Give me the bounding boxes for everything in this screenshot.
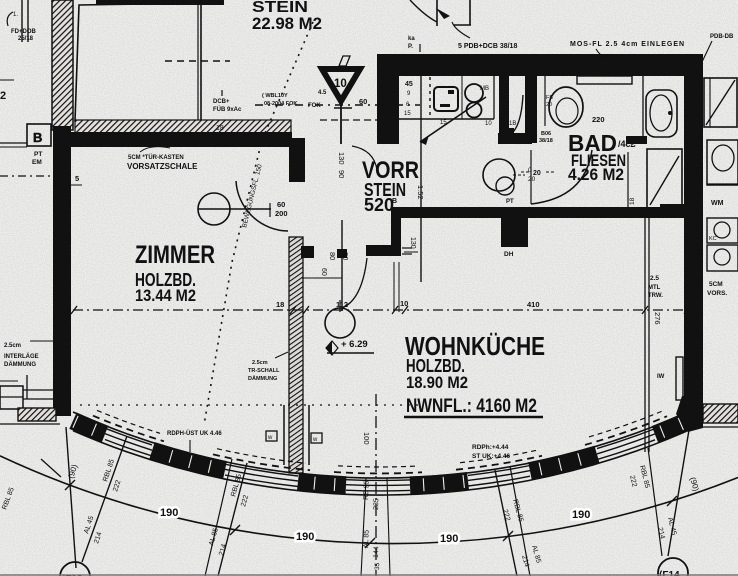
svg-text:10: 10 <box>334 78 347 90</box>
svg-text:190: 190 <box>440 533 458 545</box>
svg-text:ka: ka <box>408 36 415 42</box>
svg-text:60: 60 <box>320 268 327 276</box>
svg-text:RDPH-ÜST UK 4.46: RDPH-ÜST UK 4.46 <box>167 430 222 437</box>
svg-text:276: 276 <box>653 312 662 325</box>
svg-text:FOK: FOK <box>308 103 321 109</box>
svg-text:/4c£: /4c£ <box>618 139 636 149</box>
svg-text:112: 112 <box>336 300 348 309</box>
svg-text:w: w <box>267 435 273 441</box>
svg-text:IW: IW <box>657 374 665 380</box>
svg-text:4.26 M2: 4.26 M2 <box>568 165 624 184</box>
svg-text:INTERLÄGE: INTERLÄGE <box>4 353 39 360</box>
svg-text:MOS-FL 2.5 4cm EINLEGEN: MOS-FL 2.5 4cm EINLEGEN <box>570 41 685 48</box>
svg-text:1.: 1. <box>13 12 18 18</box>
svg-text:P.: P. <box>408 44 413 50</box>
svg-text:FD+DOB: FD+DOB <box>11 29 37 35</box>
svg-text:RDPh:+4.44: RDPh:+4.44 <box>472 444 509 451</box>
svg-text:VORSATZSCHALE: VORSATZSCHALE <box>127 162 198 171</box>
svg-text:18: 18 <box>276 300 284 309</box>
svg-text:15: 15 <box>440 120 447 126</box>
svg-text:DÄMMUNG: DÄMMUNG <box>4 361 36 368</box>
svg-text:5CM: 5CM <box>709 281 723 288</box>
svg-text:410: 410 <box>527 300 540 309</box>
svg-text:130: 130 <box>409 237 416 249</box>
svg-text:10: 10 <box>485 121 492 127</box>
svg-text:20: 20 <box>528 176 536 183</box>
svg-text:520: 520 <box>364 195 394 215</box>
svg-text:2.5: 2.5 <box>650 275 659 282</box>
svg-text:190: 190 <box>296 531 314 543</box>
svg-text:18: 18 <box>216 125 224 132</box>
svg-text:PT: PT <box>506 199 514 205</box>
svg-text:35: 35 <box>374 562 381 570</box>
svg-text:MB: MB <box>480 86 489 92</box>
svg-text:200: 200 <box>275 209 288 218</box>
svg-text:KC: KC <box>709 236 717 242</box>
svg-text:100: 100 <box>362 432 371 445</box>
svg-text:2: 2 <box>0 90 6 102</box>
svg-text:B: B <box>33 130 42 145</box>
svg-text:235: 235 <box>373 498 380 510</box>
svg-text:ZIMMER: ZIMMER <box>135 241 215 269</box>
svg-text:B06: B06 <box>541 131 551 137</box>
svg-text:DÄMMUNG: DÄMMUNG <box>248 375 277 382</box>
svg-text:PDB-DB: PDB-DB <box>710 34 734 40</box>
svg-text:5: 5 <box>75 174 79 183</box>
svg-text:18: 18 <box>629 197 636 205</box>
svg-text:2.5cm: 2.5cm <box>252 360 268 366</box>
svg-text:18.90 M2: 18.90 M2 <box>406 373 468 392</box>
svg-text:PT: PT <box>34 151 42 158</box>
svg-text:VORS.: VORS. <box>707 290 727 297</box>
svg-text:130: 130 <box>337 152 346 165</box>
svg-text:DCB+: DCB+ <box>213 99 230 105</box>
svg-text:38/18: 38/18 <box>539 138 553 144</box>
svg-text:1B: 1B <box>509 121 516 127</box>
svg-text:EM: EM <box>32 159 42 166</box>
svg-text:144: 144 <box>373 546 380 558</box>
svg-text:15: 15 <box>404 111 411 117</box>
svg-text:0: 0 <box>528 167 532 174</box>
svg-text:20: 20 <box>546 102 552 108</box>
svg-text:TR-SCHALL: TR-SCHALL <box>248 368 280 374</box>
svg-text:80: 80 <box>341 252 350 260</box>
svg-text:220: 220 <box>592 115 605 124</box>
svg-text:FB: FB <box>546 95 553 101</box>
svg-text:80: 80 <box>328 252 337 260</box>
svg-text:WM: WM <box>711 200 724 207</box>
svg-text:4.5: 4.5 <box>318 90 327 96</box>
svg-text:190: 190 <box>572 509 590 521</box>
svg-text:13.44 M2: 13.44 M2 <box>135 286 196 305</box>
svg-text:45: 45 <box>405 81 413 88</box>
svg-text:190: 190 <box>160 507 178 519</box>
svg-text:5 PDB+DCB 38/18: 5 PDB+DCB 38/18 <box>458 43 517 50</box>
svg-text:NWNFL.: 4160 M2: NWNFL.: 4160 M2 <box>406 396 537 417</box>
svg-text:ST UK:+4.46: ST UK:+4.46 <box>472 453 510 460</box>
svg-text:RB 95: RB 95 <box>363 480 371 500</box>
svg-text:B: B <box>392 198 397 205</box>
svg-text:2.5cm: 2.5cm <box>4 343 21 349</box>
svg-text:+ 6.29: + 6.29 <box>341 339 368 350</box>
svg-text:90: 90 <box>337 170 346 178</box>
svg-text:08-2004 FOK: 08-2004 FOK <box>264 101 297 107</box>
svg-text:5CM *TÜR-KASTEN: 5CM *TÜR-KASTEN <box>128 154 184 161</box>
svg-text:( WBL10Y: ( WBL10Y <box>262 93 288 99</box>
svg-text:DH: DH <box>504 251 514 258</box>
svg-text:FÜB 9xAc: FÜB 9xAc <box>213 106 242 113</box>
svg-text:MTL: MTL <box>648 285 661 291</box>
svg-text:60: 60 <box>277 200 285 209</box>
svg-text:TRW.: TRW. <box>648 293 663 299</box>
svg-text:w: w <box>312 437 318 443</box>
svg-text:25/18: 25/18 <box>18 36 34 42</box>
